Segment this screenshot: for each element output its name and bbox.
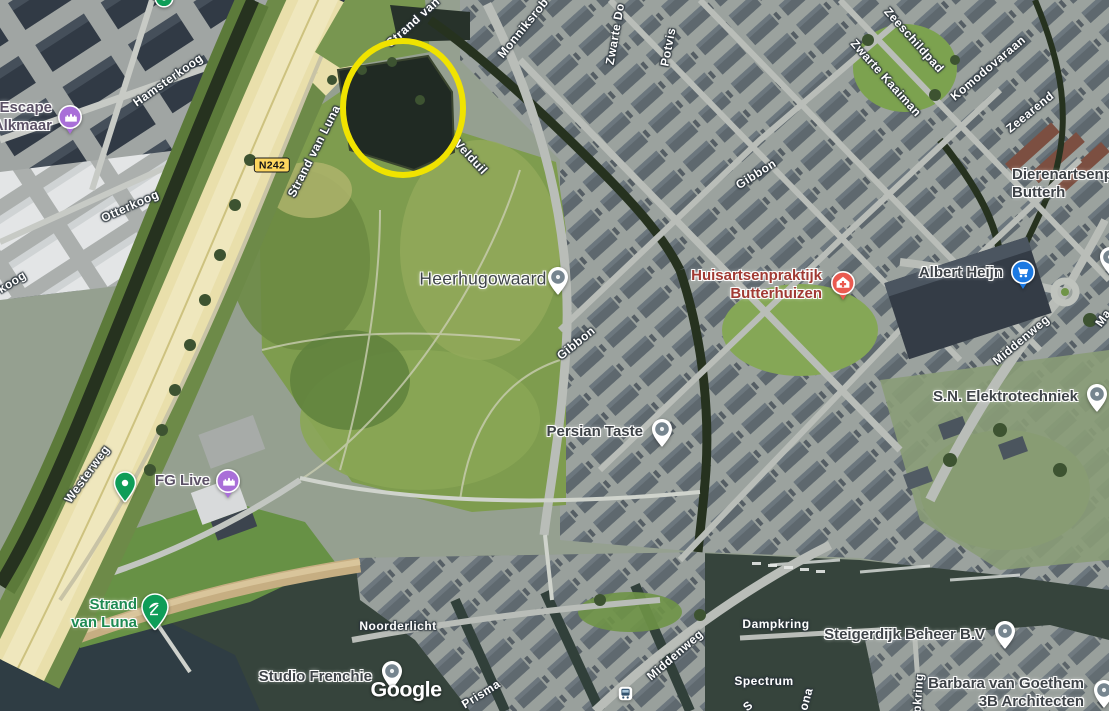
park-pin-icon[interactable] [113, 471, 137, 503]
poi-label-persian-taste[interactable]: Persian Taste [547, 423, 643, 441]
google-logo[interactable]: Google [370, 678, 441, 703]
poi-label-huisartsenpraktijk-butterhuizen[interactable]: HuisartsenpraktijkButterhuizen [691, 267, 822, 303]
poi-label-studio-frenchie[interactable]: Studio Frenchie [259, 668, 372, 686]
poi-label-line: Barbara van Goethem [928, 675, 1084, 693]
street-label-gibbon: Gibbon [554, 323, 598, 362]
poi-label-line: Strand [71, 596, 137, 614]
poi-label-albert-heijn[interactable]: Albert Heijn [919, 264, 1003, 282]
poi-pin-persian-taste[interactable] [651, 418, 673, 448]
street-label-zeearend: Zeearend [1003, 89, 1056, 136]
pin-fragment-top-icon[interactable] [154, 0, 174, 8]
poi-label-fg-live[interactable]: FG Live [155, 472, 210, 490]
bus-stop-icon[interactable] [618, 686, 633, 701]
poi-label-line: 3B Architecten [928, 693, 1084, 711]
poi-pin-strand-van-luna[interactable] [140, 593, 170, 631]
poi-label-line: Butterhuizen [691, 285, 822, 303]
road-badge-text: N242 [259, 160, 285, 172]
poi-pin-huisartsenpraktijk-butterhuizen[interactable] [830, 270, 856, 301]
street-label-gibbon: Gibbon [733, 156, 779, 192]
poi-label-line: S.N. Elektrotechniek [933, 388, 1078, 406]
poi-pin-escape-alkmaar[interactable] [57, 104, 83, 135]
poi-label-line: van Luna [71, 614, 137, 632]
map-labels-layer: HamsterkoogOtterkoogkoogStrand vanStrand… [0, 0, 1109, 711]
street-label-otterkoog: Otterkoog [99, 187, 161, 225]
street-label-koog: koog [0, 268, 29, 296]
satellite-map[interactable]: HamsterkoogOtterkoogkoogStrand vanStrand… [0, 0, 1109, 711]
street-label-dampkring: Dampkring [742, 617, 809, 631]
poi-label-escape-alkmaar[interactable]: EscapeAlkmaar [0, 99, 52, 135]
street-label-komodovaraan: Komodovaraan [948, 33, 1029, 104]
street-label-s: S [740, 698, 756, 711]
street-label-ona: ona [796, 686, 815, 711]
street-label-spectrum: Spectrum [734, 674, 793, 688]
street-label-hamsterkoog: Hamsterkoog [130, 51, 205, 110]
poi-label-line: Huisartsenpraktijk [691, 267, 822, 285]
poi-label-strand-van-luna[interactable]: Strandvan Luna [71, 596, 137, 632]
street-label-strand-van: Strand van [383, 0, 442, 50]
poi-label-line: Studio Frenchie [259, 668, 372, 686]
city-label-heerhugowaard[interactable]: Heerhugowaard [419, 269, 546, 290]
poi-label-line: Alkmaar [0, 117, 52, 135]
street-label-zeeschildpad: Zeeschildpad [881, 5, 947, 76]
poi-label-line: Dierenartsenpra [1012, 166, 1109, 184]
poi-label-steigerdijk-beheer[interactable]: Steigerdijk Beheer B.V [824, 626, 985, 644]
poi-pin-albert-heijn[interactable] [1010, 259, 1036, 290]
city-pin-heerhugowaard[interactable] [547, 266, 569, 296]
poi-label-line: FG Live [155, 472, 210, 490]
street-label-middenweg: Middenweg [990, 312, 1053, 368]
poi-label-sn-elektrotechniek[interactable]: S.N. Elektrotechniek [933, 388, 1078, 406]
street-label-potvis: Potvis [657, 27, 678, 68]
poi-label-barbara-van-goethem-3b-architecten[interactable]: Barbara van Goethem3B Architecten [928, 675, 1084, 711]
poi-label-line: Albert Heijn [919, 264, 1003, 282]
street-label-monniksrob: Monniksrob [495, 0, 552, 61]
road-badge-n242: N242 [254, 158, 290, 173]
street-label-prisma: Prisma [459, 677, 503, 711]
street-label-pkring: pkring [910, 673, 927, 711]
poi-label-line: Escape [0, 99, 52, 117]
street-label-middenweg: Middenweg [644, 627, 706, 683]
poi-label-line: Persian Taste [547, 423, 643, 441]
poi-pin-fg-live[interactable] [215, 468, 241, 499]
street-label-noorderlicht: Noorderlicht [359, 619, 436, 633]
street-label-strand-van-luna: Strand van Luna [285, 103, 344, 200]
poi-label-dierenartsenpraktijk-butterhuizen[interactable]: DierenartsenpraButterh [1012, 166, 1109, 202]
pin-fragment-right-icon[interactable] [1099, 246, 1109, 276]
poi-label-line: Steigerdijk Beheer B.V [824, 626, 985, 644]
poi-pin-steigerdijk-beheer[interactable] [994, 620, 1016, 650]
poi-label-line: Butterh [1012, 184, 1109, 202]
street-label-westerweg: Westerweg [61, 443, 112, 506]
street-label-zwarte-do: Zwarte Do [603, 2, 628, 66]
poi-pin-sn-elektrotechniek[interactable] [1086, 383, 1108, 413]
street-label-ma: Ma [1092, 307, 1109, 330]
poi-pin-barbara-van-goethem-3b-architecten[interactable] [1093, 679, 1109, 709]
street-label-velduil: Velduil [451, 137, 490, 177]
